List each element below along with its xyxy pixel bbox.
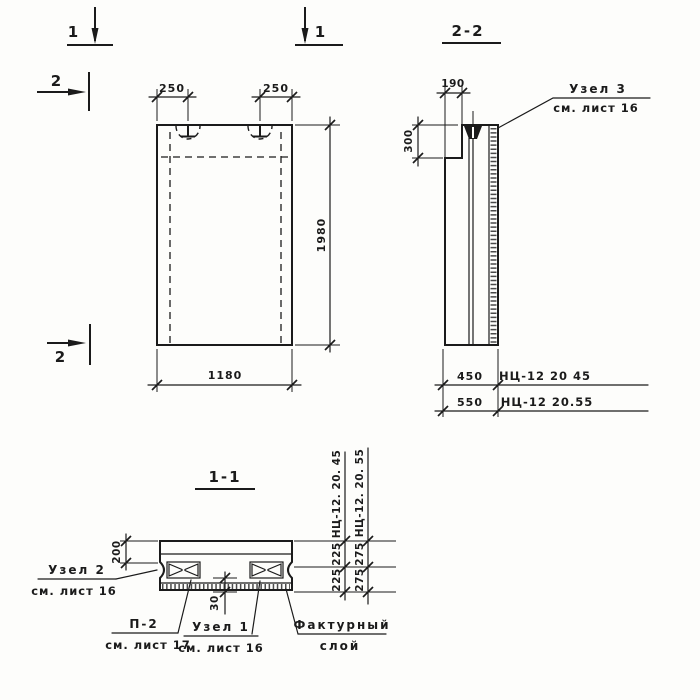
dim-value: 550 — [457, 396, 483, 409]
dim-190: 190 — [437, 78, 470, 158]
section-title: 1-1 — [208, 468, 241, 486]
mark-label: НЦ-12 20 45 — [499, 369, 591, 383]
dim-value: 1180 — [208, 369, 243, 382]
dim-value: 250 — [263, 82, 289, 95]
cut-marker-2-bottom: 2 — [48, 325, 90, 366]
dim-row-550: 550 НЦ-12 20.55 — [435, 395, 648, 416]
dim-value: 275 — [354, 542, 366, 565]
dim-200: 200 — [111, 534, 158, 570]
mark-label: НЦ-12 20.55 — [501, 395, 593, 409]
dim-value: 450 — [457, 370, 483, 383]
leader-line — [178, 580, 191, 633]
dim-1980: 1980 — [295, 117, 340, 352]
callout-node-3: Узел 3 см. лист 16 — [498, 82, 650, 128]
cut-marker-1-left: 1 — [68, 8, 112, 45]
dim-value: 250 — [159, 82, 185, 95]
dim-30: 30 — [209, 572, 237, 614]
cut-label-1-left: 1 — [68, 23, 80, 41]
dim-1180: 1180 — [148, 349, 301, 392]
callout-subtitle: слой — [320, 639, 361, 653]
callout-title: Узел 2 — [48, 563, 106, 577]
dim-value: 300 — [403, 129, 415, 152]
lifting-loop-right — [248, 126, 272, 139]
leader-line — [116, 570, 157, 579]
arrow-down-icon — [302, 28, 309, 44]
cut-label-2-top: 2 — [51, 72, 63, 90]
arrow-down-icon — [92, 28, 99, 44]
callout-node-2: Узел 2 см. лист 16 — [31, 563, 157, 598]
callout-ref: см. лист 16 — [31, 584, 117, 598]
cut-marker-2-top: 2 — [38, 72, 89, 110]
cut-label-2-bottom: 2 — [55, 348, 67, 366]
callout-ref: см. лист 16 — [178, 641, 264, 655]
blueprint-page: 1 1 2 2 — [0, 0, 700, 700]
dim-value: 225 — [331, 568, 343, 591]
profile-outline — [445, 125, 498, 345]
keyway-left — [167, 562, 200, 578]
section-title: 2-2 — [451, 22, 484, 40]
section-1-1: 1-1 — [31, 448, 396, 655]
column-45-header: НЦ-12. 20. 45 — [331, 450, 343, 539]
cut-marker-1-right: 1 — [296, 8, 342, 45]
callout-title: Узел 1 — [192, 620, 250, 634]
dim-value: 225 — [331, 542, 343, 565]
thickness-columns: НЦ-12. 20. 45 НЦ-12. 20. 55 225 225 275 … — [294, 448, 396, 604]
front-view: 250 250 1980 1180 — [148, 82, 340, 392]
lifting-loop-left — [176, 126, 200, 139]
callout-facture-layer: Фактурный слой — [286, 589, 391, 653]
dim-250-right: 250 — [252, 82, 300, 121]
dim-250-left: 250 — [149, 82, 196, 121]
leader-line — [286, 589, 298, 634]
column-55-header: НЦ-12. 20. 55 — [354, 449, 366, 538]
callout-title: Узел 3 — [569, 82, 627, 96]
panel-section-body — [160, 541, 292, 590]
panel-drawing: 1 1 2 2 — [0, 0, 700, 700]
callout-title: Фактурный — [293, 618, 390, 632]
keyway-right — [250, 562, 283, 578]
arrow-right-icon — [68, 340, 86, 347]
dim-value: 1980 — [315, 218, 328, 253]
panel-outline — [157, 125, 292, 345]
dim-value: 275 — [354, 568, 366, 591]
dim-value: 190 — [441, 78, 464, 90]
arrow-right-icon — [68, 89, 86, 96]
callout-ref: см. лист 16 — [553, 101, 639, 115]
dim-value: 30 — [209, 595, 221, 611]
section-2-2: 2-2 190 300 — [403, 22, 650, 417]
dim-value: 200 — [111, 540, 123, 563]
cut-label-1-right: 1 — [315, 23, 327, 41]
callout-title: П-2 — [129, 617, 158, 631]
